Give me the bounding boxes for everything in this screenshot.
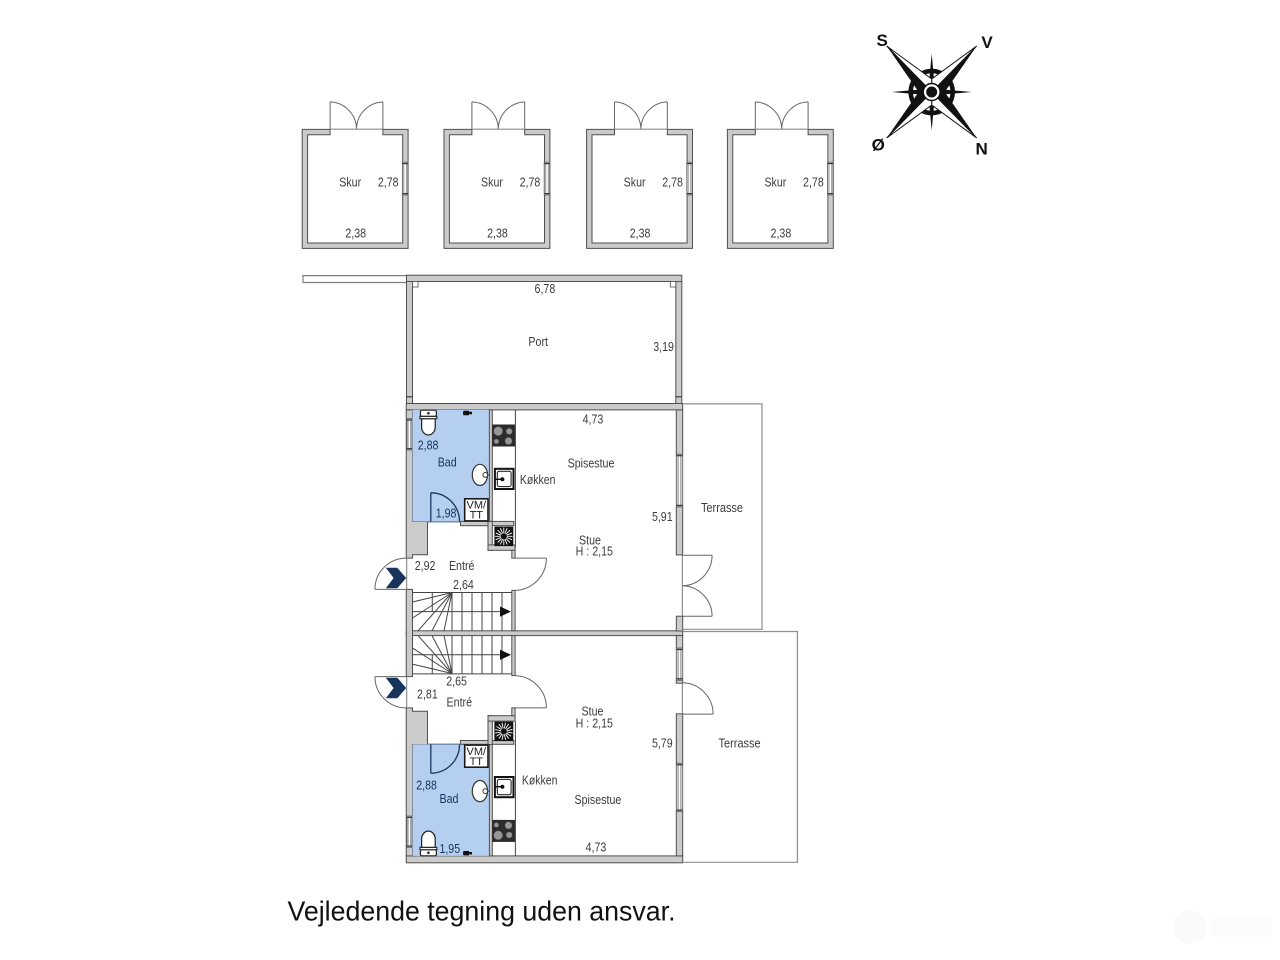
svg-text:2,88: 2,88 [416,778,437,793]
svg-text:2,38: 2,38 [487,226,508,241]
svg-text:H : 2,15: H : 2,15 [576,716,613,731]
svg-text:Port: Port [528,334,548,349]
svg-text:4,73: 4,73 [586,840,607,855]
svg-text:6,78: 6,78 [535,281,556,296]
svg-text:2,64: 2,64 [453,577,474,592]
svg-text:Spisestue: Spisestue [575,792,622,807]
svg-text:S: S [877,31,888,50]
svg-text:2,78: 2,78 [803,175,824,190]
svg-text:Terrasse: Terrasse [719,736,761,751]
svg-text:Bad: Bad [440,791,459,806]
svg-text:2,78: 2,78 [378,175,399,190]
svg-text:Terrasse: Terrasse [701,500,743,515]
svg-text:2,38: 2,38 [630,226,651,241]
svg-text:2,78: 2,78 [662,175,683,190]
svg-text:Entré: Entré [449,558,475,573]
svg-text:Køkken: Køkken [522,773,558,788]
svg-text:Køkken: Køkken [520,472,556,487]
svg-text:1,98: 1,98 [436,506,457,521]
svg-text:Skur: Skur [339,175,361,190]
svg-text:Skur: Skur [624,175,646,190]
svg-text:Spisestue: Spisestue [568,456,615,471]
svg-text:Skur: Skur [764,175,786,190]
svg-text:Skur: Skur [481,175,503,190]
svg-text:2,65: 2,65 [446,673,467,688]
svg-text:5,79: 5,79 [652,736,673,751]
svg-text:TT: TT [470,510,484,522]
svg-text:Entré: Entré [447,695,473,710]
svg-text:2,81: 2,81 [417,686,438,701]
svg-text:2,78: 2,78 [520,175,541,190]
svg-text:Bad: Bad [438,455,457,470]
svg-text:H : 2,15: H : 2,15 [576,544,613,559]
svg-text:TT: TT [470,756,484,768]
svg-text:2,92: 2,92 [415,558,436,573]
svg-text:2,88: 2,88 [418,437,439,452]
svg-text:1,95: 1,95 [439,841,460,856]
svg-text:N: N [976,140,988,159]
svg-text:2,38: 2,38 [345,226,366,241]
svg-text:3,19: 3,19 [653,339,674,354]
svg-text:4,73: 4,73 [583,412,604,427]
svg-text:5,91: 5,91 [652,509,673,524]
svg-text:Ø: Ø [872,136,885,155]
svg-text:2,38: 2,38 [771,226,792,241]
svg-text:Vejledende tegning uden ansvar: Vejledende tegning uden ansvar. [288,896,676,927]
svg-text:V: V [981,33,993,52]
